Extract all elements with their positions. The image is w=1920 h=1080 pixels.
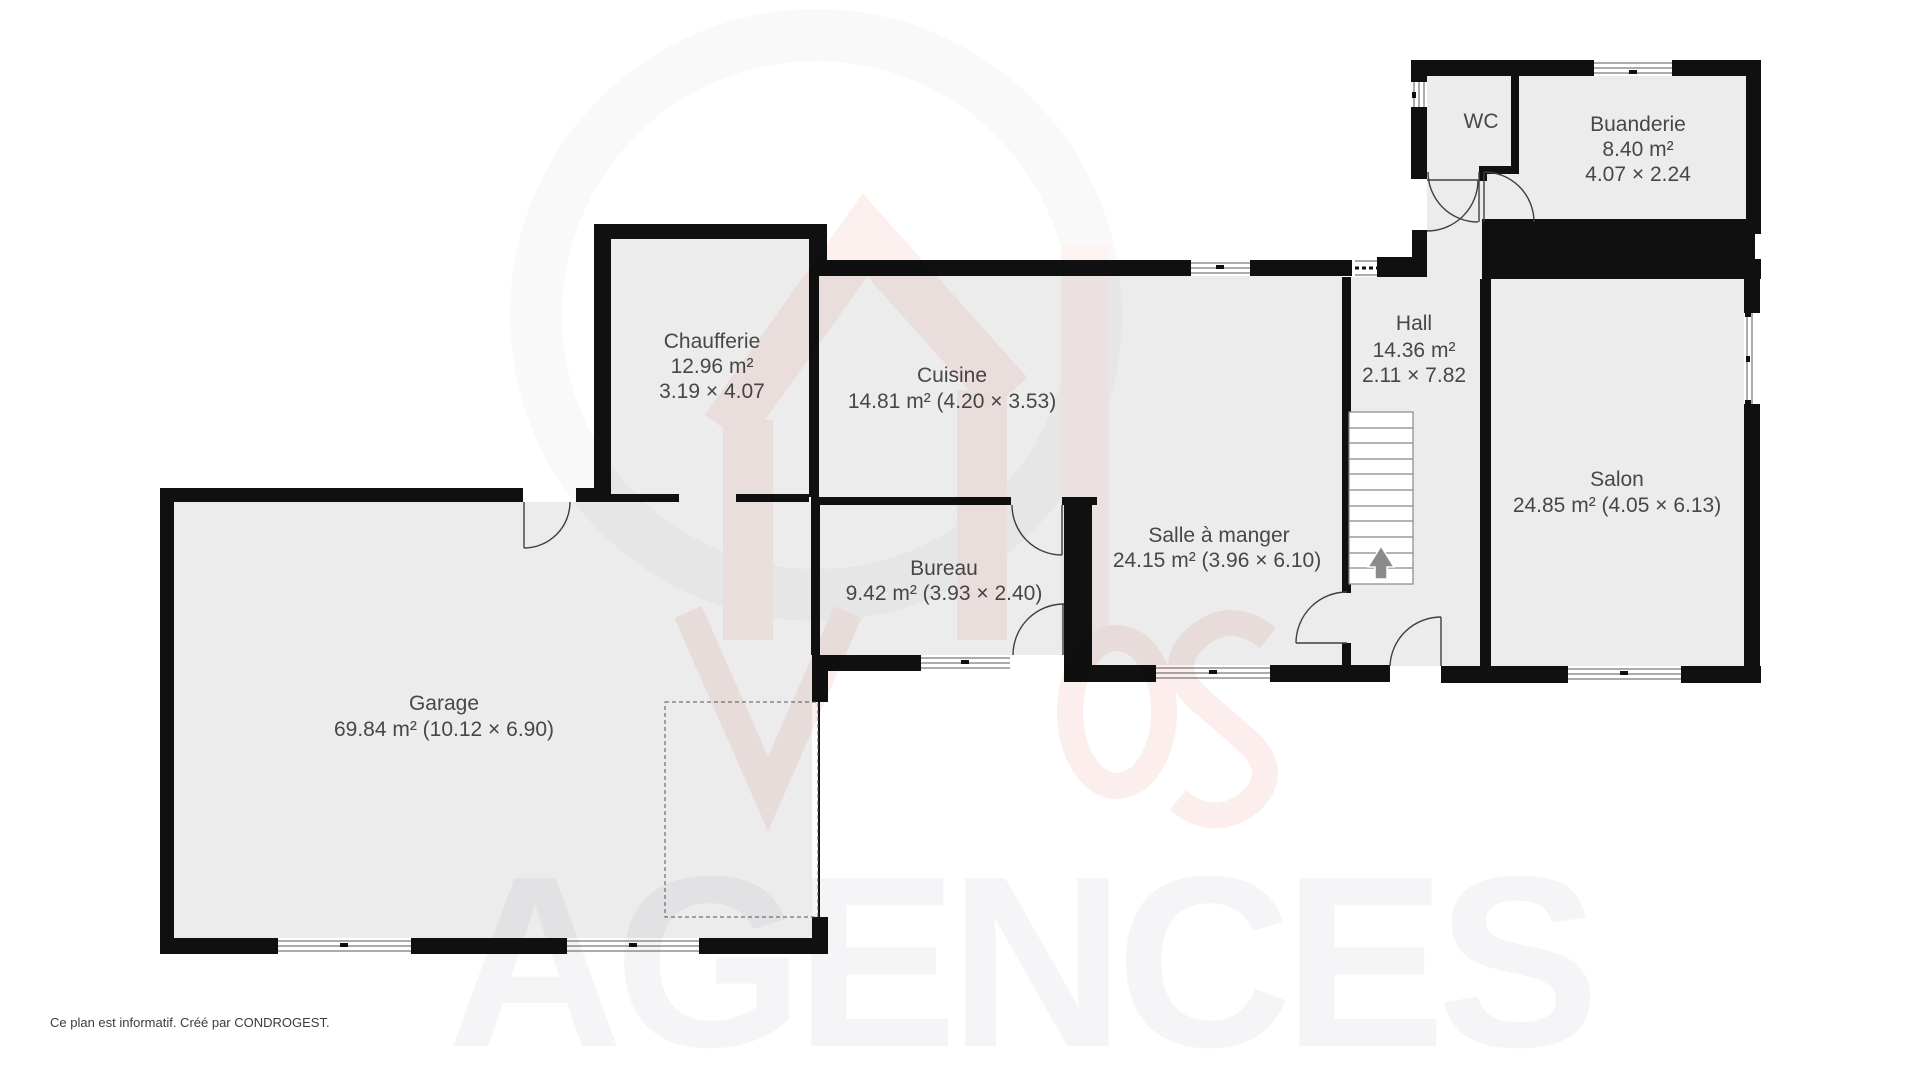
svg-text:AGENCES: AGENCES <box>447 825 1591 1080</box>
svg-text:Hall: Hall <box>1396 312 1432 335</box>
svg-text:Salle à manger: Salle à manger <box>1148 524 1289 547</box>
svg-text:14.81 m² (4.20 × 3.53): 14.81 m² (4.20 × 3.53) <box>848 390 1056 413</box>
svg-text:4.07 × 2.24: 4.07 × 2.24 <box>1585 163 1691 186</box>
svg-text:Garage: Garage <box>409 692 479 715</box>
svg-text:Ce plan est informatif. Créé p: Ce plan est informatif. Créé par CONDROG… <box>50 1015 330 1030</box>
svg-text:69.84 m² (10.12 × 6.90): 69.84 m² (10.12 × 6.90) <box>334 718 554 741</box>
svg-text:Chaufferie: Chaufferie <box>664 330 761 353</box>
svg-text:2.11 × 7.82: 2.11 × 7.82 <box>1362 364 1466 387</box>
svg-text:24.85 m² (4.05 × 6.13): 24.85 m² (4.05 × 6.13) <box>1513 494 1721 517</box>
svg-text:8.40 m²: 8.40 m² <box>1602 138 1673 161</box>
svg-text:Salon: Salon <box>1590 468 1644 491</box>
svg-text:14.36 m²: 14.36 m² <box>1373 339 1456 362</box>
svg-text:Buanderie: Buanderie <box>1590 113 1686 136</box>
svg-text:WC: WC <box>1464 110 1499 133</box>
svg-text:24.15 m² (3.96 × 6.10): 24.15 m² (3.96 × 6.10) <box>1113 549 1321 572</box>
